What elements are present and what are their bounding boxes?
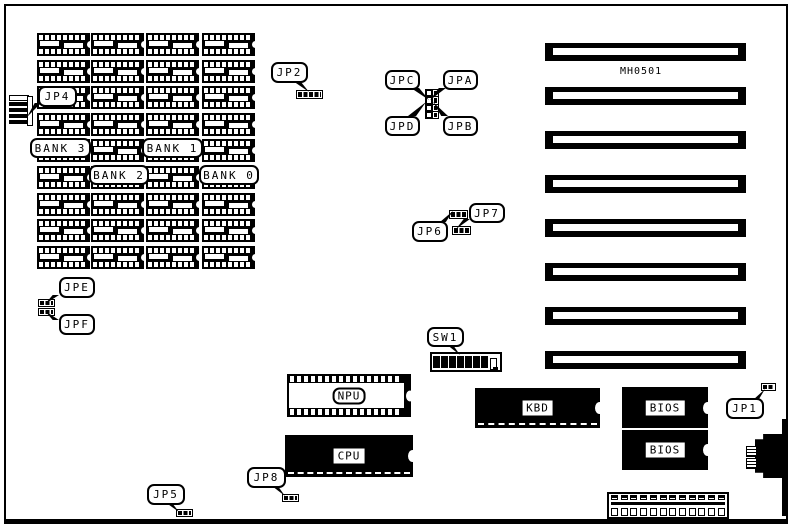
memory-chip	[202, 219, 255, 242]
power-pin	[630, 495, 637, 500]
power-pin	[660, 495, 667, 500]
memory-chip	[37, 193, 90, 216]
bios-top-notch-icon	[703, 402, 712, 414]
power-pin	[718, 495, 725, 500]
memory-chip	[37, 113, 90, 136]
callout-bank2-label: BANK 2	[93, 170, 145, 181]
callout-jp4-label: JP4	[45, 91, 71, 102]
memory-chip	[202, 33, 255, 56]
power-connector	[607, 492, 729, 519]
power-pin-socket	[669, 508, 676, 516]
callout-jp5: JP5	[147, 484, 185, 505]
memory-chip	[202, 193, 255, 216]
callout-jp1-label: JP1	[732, 403, 758, 414]
expansion-slot	[545, 131, 746, 149]
memory-chip	[146, 246, 199, 269]
memory-chip	[146, 60, 199, 83]
callout-jp8: JP8	[247, 467, 286, 488]
memory-chip	[202, 139, 255, 162]
power-pin-socket	[708, 508, 715, 516]
sw1-switch-cell	[490, 358, 497, 370]
jumper-jp7-block	[452, 226, 471, 235]
callout-jp2-label: JP2	[277, 67, 303, 78]
callout-jpd: JPD	[385, 116, 420, 136]
power-pin	[611, 495, 618, 500]
callout-jpb: JPB	[443, 116, 478, 136]
connector-contact	[9, 108, 29, 112]
kbd-dashed-line	[478, 423, 597, 425]
callout-jpf-label: JPF	[64, 319, 90, 330]
memory-chip	[37, 33, 90, 56]
memory-chip	[91, 86, 144, 109]
jumper-jp6-block	[449, 210, 468, 219]
power-pin-socket	[611, 508, 618, 516]
jumper-jp5-block	[176, 509, 193, 517]
memory-chip	[91, 219, 144, 242]
power-pin-socket	[660, 508, 667, 516]
sw1-dip-switch	[430, 352, 502, 372]
jumper-jp1-block	[761, 383, 776, 391]
power-connector-pins-bottom	[611, 508, 725, 516]
memory-chip	[37, 60, 90, 83]
callout-jpe-label: JPE	[64, 282, 90, 293]
memory-chip	[91, 60, 144, 83]
memory-column	[202, 33, 255, 269]
connector-contact	[9, 95, 29, 101]
callout-jp5-label: JP5	[153, 489, 179, 500]
memory-chip	[91, 139, 144, 162]
callout-jpc: JPC	[385, 70, 420, 90]
callout-jp7-label: JP7	[474, 208, 500, 219]
power-pin	[698, 495, 705, 500]
callout-bank1-label: BANK 1	[147, 143, 199, 154]
memory-chip	[37, 246, 90, 269]
callout-jpd-label: JPD	[390, 121, 416, 132]
power-pin	[679, 495, 686, 500]
motherboard-diagram: MH0501 NPU CPU KBD BIOS BIOS	[0, 0, 791, 527]
callout-jp6: JP6	[412, 221, 448, 242]
power-connector-bar	[611, 502, 725, 505]
kbd-label: KBD	[522, 401, 553, 416]
cpu-notch-icon	[408, 450, 417, 462]
callout-jpc-label: JPC	[390, 75, 416, 86]
bios-bottom-label: BIOS	[646, 443, 685, 458]
callout-sw1-label: SW1	[433, 332, 459, 343]
kbd-notch-icon	[595, 402, 604, 414]
power-pin-socket	[689, 508, 696, 516]
left-edge-connector	[9, 95, 33, 129]
power-pin-socket	[621, 508, 628, 516]
board-model-label: MH0501	[620, 66, 662, 77]
expansion-slot	[545, 219, 746, 237]
callout-jp4: JP4	[38, 86, 77, 107]
right-edge-bracket	[782, 419, 788, 516]
memory-chip	[202, 113, 255, 136]
sw1-switch-cell	[433, 356, 440, 368]
expansion-slot	[545, 87, 746, 105]
memory-chip	[91, 113, 144, 136]
expansion-slot	[545, 263, 746, 281]
memory-column	[91, 33, 144, 269]
memory-chip	[146, 86, 199, 109]
cpu-label: CPU	[334, 449, 365, 464]
memory-chip	[37, 166, 90, 189]
npu-label: NPU	[333, 387, 366, 404]
callout-bank3: BANK 3	[30, 138, 91, 158]
callout-jpd-tail	[408, 102, 426, 116]
callout-jpf: JPF	[59, 314, 95, 335]
power-pin-socket	[698, 508, 705, 516]
callout-jpa: JPA	[443, 70, 478, 90]
callout-jpa-label: JPA	[448, 75, 474, 86]
jumper-jp8-block	[282, 494, 299, 502]
callout-jp6-label: JP6	[417, 226, 443, 237]
memory-chip	[202, 86, 255, 109]
callout-bank3-label: BANK 3	[35, 143, 87, 154]
callout-jpe: JPE	[59, 277, 95, 298]
power-pin-socket	[640, 508, 647, 516]
expansion-slot	[545, 307, 746, 325]
connector-contact	[9, 102, 29, 106]
npu-socket: NPU	[287, 374, 411, 417]
sw1-switch-cell	[457, 356, 464, 368]
power-pin	[650, 495, 657, 500]
memory-chip	[146, 166, 199, 189]
memory-chip	[146, 193, 199, 216]
connector-contact	[9, 120, 29, 124]
bios-top-label: BIOS	[646, 400, 685, 415]
callout-jp7: JP7	[469, 203, 505, 223]
power-pin-socket	[630, 508, 637, 516]
power-pin	[689, 495, 696, 500]
memory-chip	[146, 219, 199, 242]
memory-chip	[202, 60, 255, 83]
memory-chip	[202, 246, 255, 269]
expansion-slot	[545, 175, 746, 193]
bios-chip-top: BIOS	[622, 387, 708, 428]
callout-jp1: JP1	[726, 398, 764, 419]
callout-jpb-label: JPB	[448, 121, 474, 132]
expansion-slot	[545, 43, 746, 61]
sw1-switch-cell	[465, 356, 472, 368]
memory-chip	[91, 246, 144, 269]
npu-notch-icon	[406, 390, 414, 401]
memory-chip	[91, 33, 144, 56]
sw1-switch-cell	[481, 356, 488, 368]
callout-jp2: JP2	[271, 62, 308, 83]
power-pin	[708, 495, 715, 500]
connector-contact	[9, 114, 29, 118]
bios-bottom-notch-icon	[703, 444, 712, 456]
sw1-switch-cell	[473, 356, 480, 368]
power-pin	[640, 495, 647, 500]
callout-bank0: BANK 0	[199, 165, 259, 185]
power-pin-socket	[679, 508, 686, 516]
memory-chip	[91, 193, 144, 216]
expansion-slot	[545, 351, 746, 369]
jumper-jp2-block	[296, 90, 323, 99]
power-pin	[669, 495, 676, 500]
power-pin-socket	[650, 508, 657, 516]
callout-jp8-label: JP8	[254, 472, 280, 483]
cpu-dashed-line	[288, 472, 410, 474]
sw1-switch-cell	[441, 356, 448, 368]
memory-chip	[146, 33, 199, 56]
power-pin	[621, 495, 628, 500]
din-pin-header	[746, 446, 757, 457]
cpu-chip: CPU	[285, 435, 413, 477]
din-pin-header	[746, 458, 757, 469]
expansion-slots	[545, 43, 746, 395]
memory-chip	[146, 113, 199, 136]
sw1-switch-cell	[449, 356, 456, 368]
callout-sw1: SW1	[427, 327, 464, 347]
callout-bank2: BANK 2	[89, 165, 149, 185]
kbd-chip: KBD	[475, 388, 600, 428]
memory-chip	[37, 219, 90, 242]
callout-bank1: BANK 1	[142, 138, 203, 158]
power-pin-socket	[718, 508, 725, 516]
keyboard-din-connector	[755, 434, 784, 478]
callout-bank0-label: BANK 0	[203, 170, 255, 181]
power-connector-pins-top	[611, 495, 725, 500]
bios-chip-bottom: BIOS	[622, 430, 708, 470]
